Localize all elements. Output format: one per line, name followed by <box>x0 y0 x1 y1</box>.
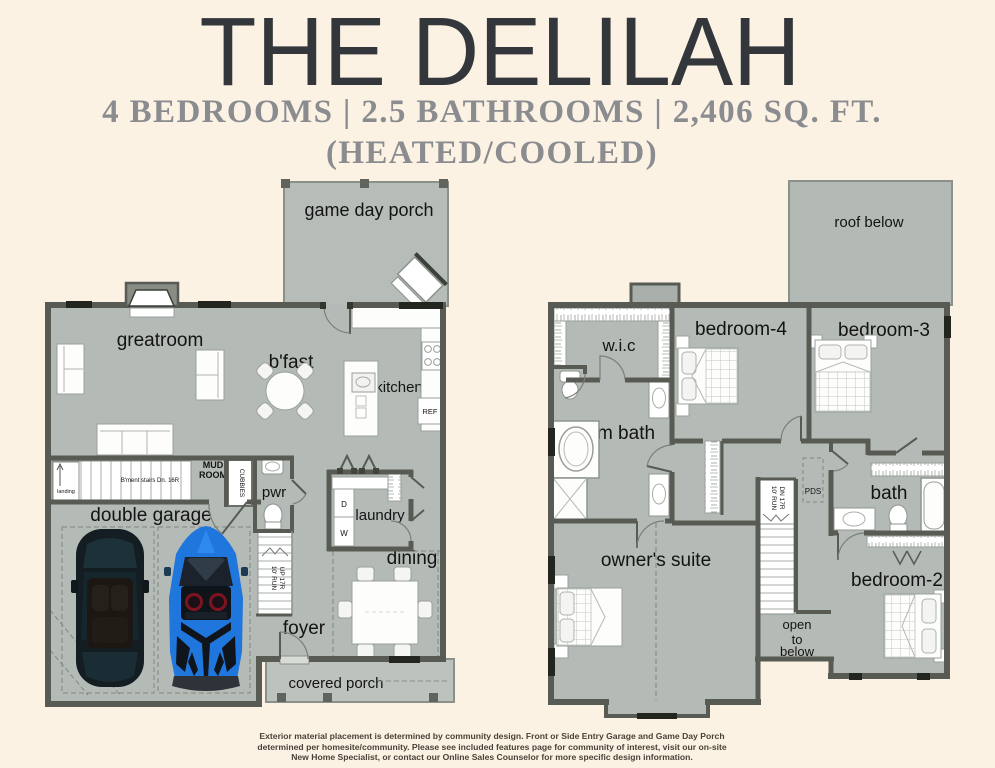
svg-text:m bath: m bath <box>597 423 655 444</box>
svg-text:MUD: MUD <box>203 460 224 470</box>
svg-text:bath: bath <box>871 483 908 504</box>
svg-text:bedroom-4: bedroom-4 <box>695 319 787 340</box>
svg-text:roof below: roof below <box>834 214 903 231</box>
svg-text:4 BEDROOMS | 2.5 BATHROOMS | 2: 4 BEDROOMS | 2.5 BATHROOMS | 2,406 SQ. F… <box>102 94 882 130</box>
svg-text:DN 17R: DN 17R <box>778 486 785 509</box>
svg-text:bedroom-2: bedroom-2 <box>851 570 943 591</box>
svg-text:foyer: foyer <box>283 618 326 639</box>
svg-text:REF: REF <box>423 407 438 416</box>
svg-text:covered porch: covered porch <box>288 675 383 692</box>
svg-text:New Home Specialist, or contac: New Home Specialist, or contact our Onli… <box>291 752 693 762</box>
svg-text:B'ment stairs Dn. 16R: B'ment stairs Dn. 16R <box>121 478 180 484</box>
svg-text:10' RUN: 10' RUN <box>270 566 277 591</box>
svg-text:CUBBIES: CUBBIES <box>238 469 245 498</box>
svg-text:W: W <box>340 529 348 538</box>
svg-text:10' RUN: 10' RUN <box>770 486 777 511</box>
svg-text:bedroom-3: bedroom-3 <box>838 320 930 341</box>
svg-text:(HEATED/COOLED): (HEATED/COOLED) <box>326 135 658 171</box>
svg-text:ROOM: ROOM <box>199 470 227 480</box>
svg-text:PDS: PDS <box>805 487 821 496</box>
svg-text:w.i.c: w.i.c <box>601 336 636 355</box>
svg-text:pwr: pwr <box>262 484 286 501</box>
svg-text:determined per homesite/commun: determined per homesite/community. Pleas… <box>257 742 726 752</box>
svg-text:landing: landing <box>57 489 75 495</box>
svg-text:kitchen: kitchen <box>375 379 423 396</box>
svg-text:D: D <box>341 500 347 509</box>
svg-text:UP 17R: UP 17R <box>278 567 285 590</box>
svg-text:double garage: double garage <box>90 505 212 526</box>
svg-text:open: open <box>783 617 812 632</box>
svg-text:greatroom: greatroom <box>117 330 204 351</box>
svg-text:game day porch: game day porch <box>304 200 433 220</box>
svg-text:THE DELILAH: THE DELILAH <box>200 0 801 106</box>
svg-text:Exterior material placement is: Exterior material placement is determine… <box>259 731 724 741</box>
